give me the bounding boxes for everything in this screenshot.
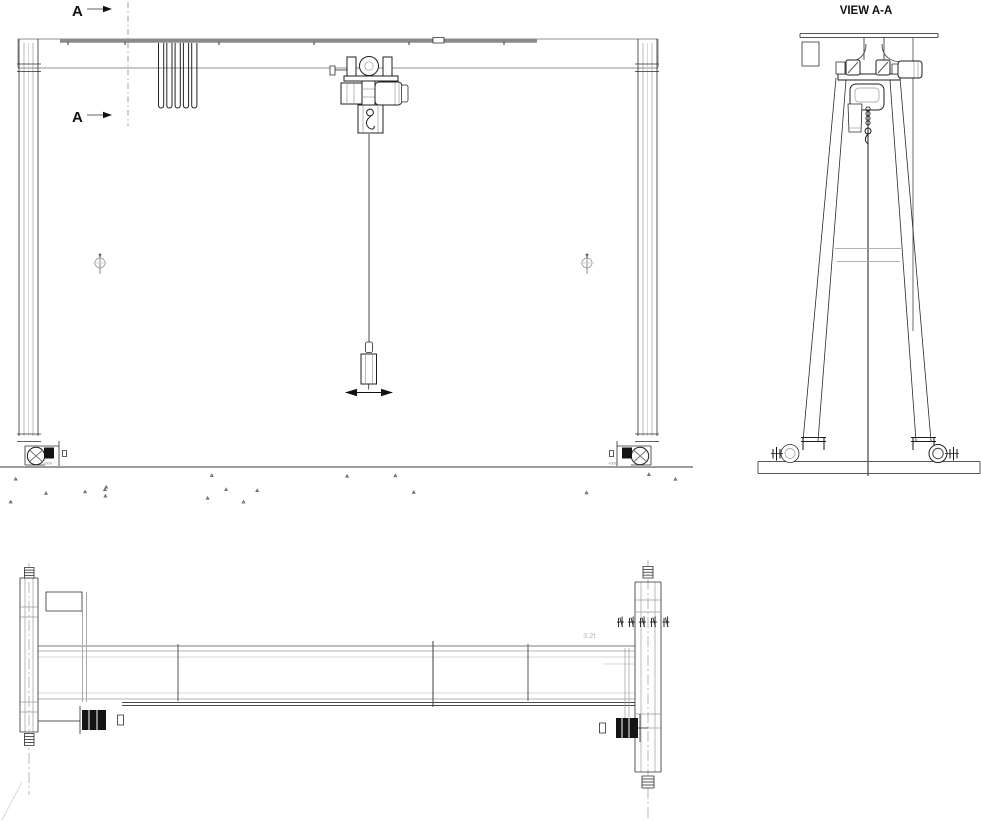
hoist-motor (898, 61, 922, 78)
hook-block (361, 342, 377, 390)
section-cut-marker-top: A (72, 3, 112, 20)
section-label: A (72, 3, 83, 20)
travel-direction-arrows-icon (345, 389, 393, 396)
leg-foot-left (801, 437, 826, 450)
section-cut-marker-bottom: A (72, 109, 112, 126)
bridge-beam (18, 39, 658, 68)
right-gantry-leg (635, 39, 659, 442)
beam-cross-section (846, 38, 902, 63)
bridge-beam-plan (38, 641, 635, 707)
side-wheel-left (771, 445, 799, 463)
section-arrow-icon (103, 112, 112, 118)
datum-target-icon (93, 253, 107, 274)
section-arrow-icon (103, 6, 112, 12)
section-label: A (72, 109, 83, 126)
stray-centerline (2, 782, 22, 820)
right-end-carriage (625, 582, 661, 772)
datum-target-icon (580, 253, 594, 274)
a-frame-legs (803, 78, 931, 441)
engineering-drawing-canvas: A A (0, 0, 981, 821)
electrical-box-plan (46, 592, 87, 702)
front-elevation-view: A A (0, 2, 693, 506)
ground-hatch (7, 469, 689, 506)
base-frame (758, 462, 980, 474)
tiny-annotation-marks (617, 617, 670, 628)
wheel-note: +500 (608, 461, 618, 466)
festoon-cable-loops (158, 40, 198, 108)
side-wheel-right (929, 445, 959, 463)
capacity-note: 3.2t (583, 631, 596, 640)
view-title: VIEW A-A (840, 5, 893, 17)
hoist-motor (375, 82, 402, 105)
rail-buffers (25, 567, 655, 789)
left-gantry-leg (17, 39, 41, 442)
wheel-note: +500 (43, 461, 53, 466)
hoist-side-view (836, 60, 922, 144)
plan-view: 3.2t (2, 560, 669, 820)
left-wheel-assembly: +500 (25, 441, 67, 466)
rail-clamp (433, 38, 444, 44)
plan-motor-left (38, 706, 124, 734)
side-view: VIEW A-A (758, 5, 980, 476)
right-wheel-assembly: +500 (608, 441, 651, 466)
trolley-gear-housing (360, 57, 379, 76)
electrical-panel (802, 42, 819, 66)
drawing-sheet: A A (0, 0, 981, 821)
